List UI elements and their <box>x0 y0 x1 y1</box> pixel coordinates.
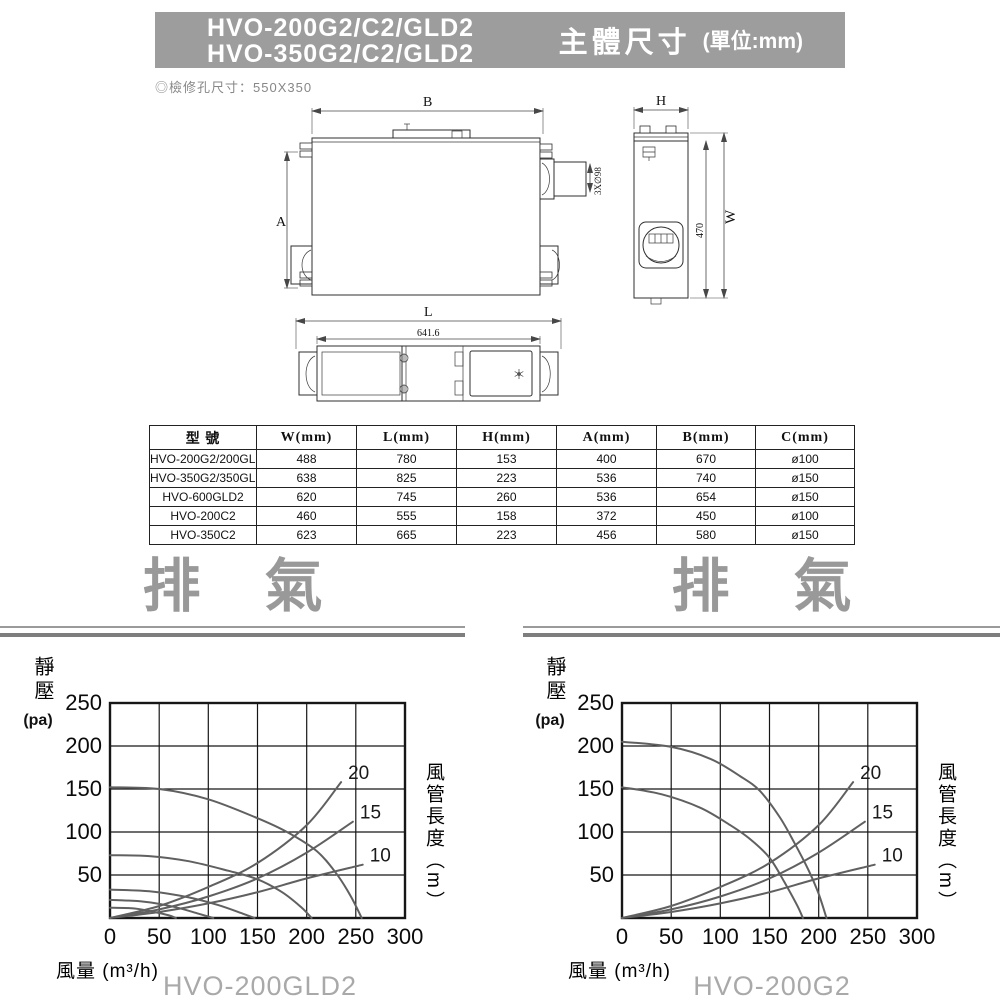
datasheet-page: HVO-200G2/C2/GLD2 HVO-350G2/C2/GLD2 主體尺寸… <box>0 0 1000 1000</box>
dimension-table: 型 號W(mm)L(mm)H(mm)A(mm)B(mm)C(mm) HVO-20… <box>149 425 855 545</box>
table-cell: 460 <box>257 507 357 526</box>
table-cell: 153 <box>457 450 557 469</box>
y-axis-tick: 250 <box>40 690 102 716</box>
table-cell: 223 <box>457 469 557 488</box>
y-axis-tick: 250 <box>552 690 614 716</box>
technical-drawings: 3X∅98 B A <box>270 95 745 425</box>
curve-label: 10 <box>370 846 391 867</box>
column-header: B(mm) <box>657 426 756 450</box>
table-cell: 745 <box>357 488 457 507</box>
fan-speed-high <box>622 742 827 918</box>
dim-label-b: B <box>423 95 432 110</box>
table-cell: 825 <box>357 469 457 488</box>
x-axis-tick: 100 <box>181 924 235 950</box>
table-cell: 665 <box>357 526 457 545</box>
exhaust-label: 排氣 <box>523 556 1000 618</box>
table-cell: 450 <box>657 507 756 526</box>
x-axis-tick: 200 <box>792 924 846 950</box>
table-cell: ø100 <box>756 450 855 469</box>
table-cell: 456 <box>557 526 657 545</box>
x-axis-tick: 250 <box>841 924 895 950</box>
table-cell: ø150 <box>756 526 855 545</box>
table-cell: 260 <box>457 488 557 507</box>
model-line-1: HVO-200G2/C2/GLD2 <box>207 15 474 41</box>
table-cell: HVO-600GLD2 <box>150 488 257 507</box>
duct-length-15 <box>110 822 353 918</box>
column-header: W(mm) <box>257 426 357 450</box>
inspection-note: ◎檢修孔尺寸：550X350 <box>155 77 312 96</box>
x-axis-tick: 0 <box>83 924 137 950</box>
x-axis-tick: 250 <box>329 924 383 950</box>
section-title: 主體尺寸 <box>559 19 691 61</box>
curve-label: 10 <box>882 846 903 867</box>
bottom-view: L 641.6 <box>296 305 561 401</box>
table-cell: ø150 <box>756 469 855 488</box>
y-axis-tick: 100 <box>552 819 614 845</box>
unit-note: (單位:mm) <box>703 25 803 55</box>
curve-label: 15 <box>872 803 893 824</box>
separator-thick <box>0 633 465 637</box>
table-cell: 780 <box>357 450 457 469</box>
right-axis-label: 風管長度（m） <box>420 762 447 913</box>
chart-plot: 201510 <box>110 703 405 918</box>
x-axis-tick: 150 <box>743 924 797 950</box>
header-right: 主體尺寸 (單位:mm) <box>559 12 803 68</box>
table-cell: 654 <box>657 488 756 507</box>
dim-label-a: A <box>276 215 287 230</box>
table-cell: HVO-350G2/350GLD2 <box>150 469 257 488</box>
table-cell: 620 <box>257 488 357 507</box>
y-axis-tick: 150 <box>552 776 614 802</box>
dim-label-470: 470 <box>695 223 706 238</box>
table-cell: 400 <box>557 450 657 469</box>
x-axis-tick: 0 <box>595 924 649 950</box>
x-axis-tick: 150 <box>231 924 285 950</box>
model-titles: HVO-200G2/C2/GLD2 HVO-350G2/C2/GLD2 <box>207 15 474 67</box>
table-cell: 223 <box>457 526 557 545</box>
dim-label-h: H <box>656 95 666 109</box>
top-view: 3X∅98 B A <box>276 95 603 295</box>
table-cell: ø100 <box>756 507 855 526</box>
table-row: HVO-350C2623665223456580ø150 <box>150 526 855 545</box>
chart-hvo-200gld2: 靜壓 (pa) 201510 風管長度（m） 風量 (m³/h) HVO-200… <box>0 650 500 1000</box>
table-header-row: 型 號W(mm)L(mm)H(mm)A(mm)B(mm)C(mm) <box>150 426 855 450</box>
table-cell: HVO-350C2 <box>150 526 257 545</box>
exhaust-label: 排氣 <box>0 556 465 618</box>
y-axis-tick: 50 <box>40 862 102 888</box>
table-cell: ø150 <box>756 488 855 507</box>
x-axis-tick: 300 <box>378 924 432 950</box>
curve-label: 20 <box>860 763 881 784</box>
chart-title: HVO-200G2 <box>622 971 922 1000</box>
table-body: HVO-200G2/200GLD2488780153400670ø100HVO-… <box>150 450 855 545</box>
table-cell: 670 <box>657 450 756 469</box>
right-axis-label: 風管長度（m） <box>932 762 959 913</box>
table-cell: 536 <box>557 469 657 488</box>
x-axis-tick: 50 <box>644 924 698 950</box>
exhaust-section-right: 排氣 <box>523 556 1000 642</box>
header-bar: HVO-200G2/C2/GLD2 HVO-350G2/C2/GLD2 主體尺寸… <box>155 12 845 68</box>
duct-length-15 <box>622 822 865 918</box>
column-header: L(mm) <box>357 426 457 450</box>
table-cell: 536 <box>557 488 657 507</box>
column-header: A(mm) <box>557 426 657 450</box>
column-header: 型 號 <box>150 426 257 450</box>
dim-label-w: W <box>723 209 739 224</box>
x-axis-tick: 200 <box>280 924 334 950</box>
fan-icon <box>515 369 524 379</box>
column-header: H(mm) <box>457 426 557 450</box>
table-cell: 638 <box>257 469 357 488</box>
y-axis-tick: 100 <box>40 819 102 845</box>
model-line-2: HVO-350G2/C2/GLD2 <box>207 41 474 67</box>
y-axis-tick: 150 <box>40 776 102 802</box>
chart-title: HVO-200GLD2 <box>110 971 410 1000</box>
separator-thin <box>0 626 465 628</box>
curve-label: 15 <box>360 803 381 824</box>
dim-label-l: L <box>424 305 433 320</box>
y-axis-tick: 200 <box>40 733 102 759</box>
separator-thick <box>523 633 1000 637</box>
table-cell: 740 <box>657 469 756 488</box>
side-view: H 470 W <box>634 95 739 304</box>
dim-label-duct: 3X∅98 <box>593 167 603 195</box>
table-cell: 623 <box>257 526 357 545</box>
table-cell: 488 <box>257 450 357 469</box>
table-cell: 555 <box>357 507 457 526</box>
dim-label-6416: 641.6 <box>417 328 440 339</box>
table-cell: HVO-200C2 <box>150 507 257 526</box>
table-row: HVO-200G2/200GLD2488780153400670ø100 <box>150 450 855 469</box>
table-cell: 158 <box>457 507 557 526</box>
table-cell: 372 <box>557 507 657 526</box>
table-cell: HVO-200G2/200GLD2 <box>150 450 257 469</box>
curve-label: 20 <box>348 763 369 784</box>
table-cell: 580 <box>657 526 756 545</box>
table-row: HVO-200C2460555158372450ø100 <box>150 507 855 526</box>
y-axis-tick: 50 <box>552 862 614 888</box>
table-row: HVO-600GLD2620745260536654ø150 <box>150 488 855 507</box>
chart-hvo-200g2: 靜壓 (pa) 201510 風管長度（m） 風量 (m³/h) HVO-200… <box>512 650 1000 1000</box>
x-axis-tick: 50 <box>132 924 186 950</box>
x-axis-tick: 300 <box>890 924 944 950</box>
separator-thin <box>523 626 1000 628</box>
chart-plot: 201510 <box>622 703 917 918</box>
column-header: C(mm) <box>756 426 855 450</box>
y-axis-tick: 200 <box>552 733 614 759</box>
x-axis-tick: 100 <box>693 924 747 950</box>
exhaust-section-left: 排氣 <box>0 556 465 642</box>
table-row: HVO-350G2/350GLD2638825223536740ø150 <box>150 469 855 488</box>
